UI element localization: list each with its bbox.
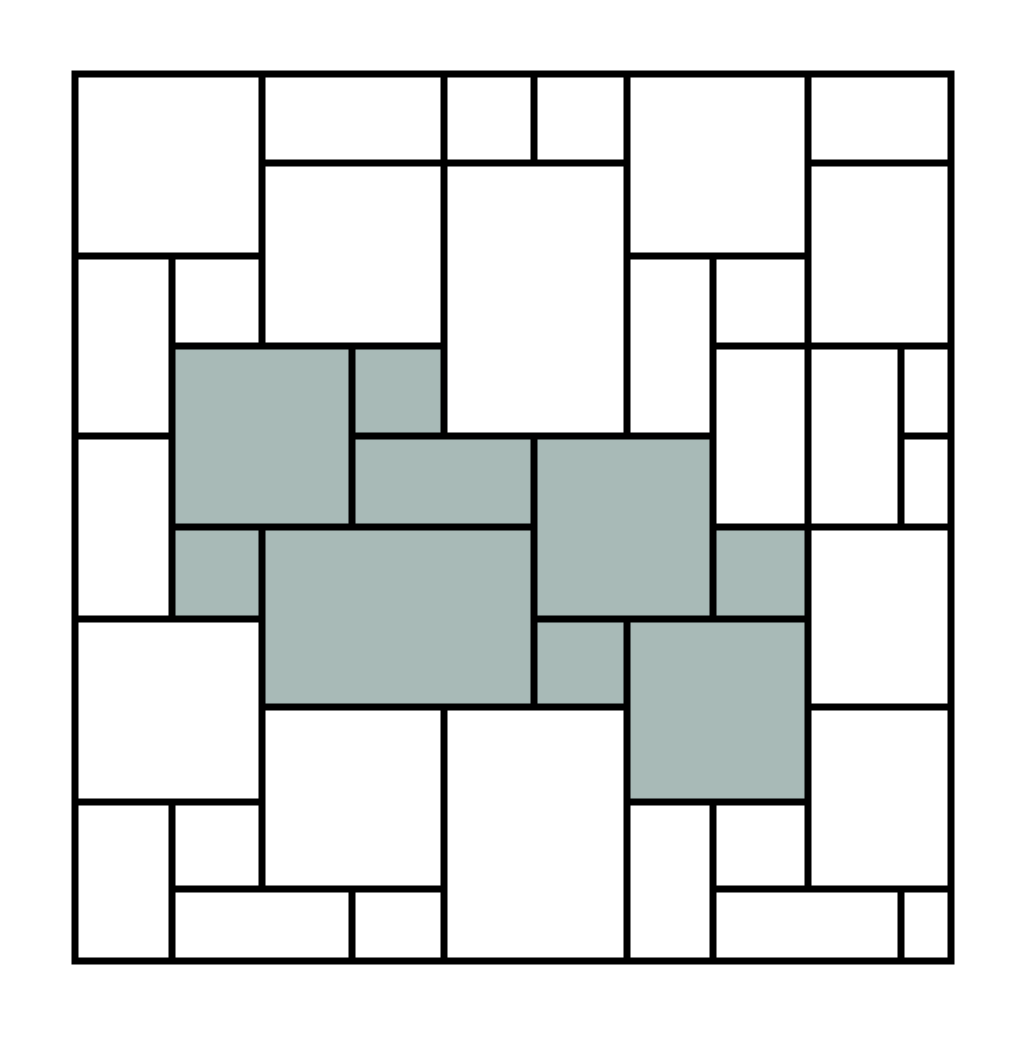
shaded-tile (172, 346, 352, 527)
white-tile (713, 256, 808, 346)
white-tile (808, 163, 951, 346)
shaded-tile (262, 527, 534, 707)
white-tile (75, 802, 172, 961)
white-tile (75, 436, 172, 619)
shaded-tile (172, 527, 262, 619)
white-tile (713, 889, 901, 961)
white-tile (713, 802, 808, 889)
white-tile (262, 707, 444, 889)
shaded-tile (534, 619, 627, 707)
white-tile (262, 163, 444, 346)
shaded-tile (352, 346, 444, 436)
white-tile (808, 74, 951, 163)
white-tile (808, 346, 901, 527)
shaded-tile (627, 619, 808, 802)
white-tile (444, 74, 534, 163)
white-tile (713, 346, 808, 527)
white-tile (75, 256, 172, 436)
diagram-page (0, 0, 1024, 1038)
white-tile (627, 74, 808, 256)
white-tile (75, 619, 262, 802)
white-tile (901, 436, 951, 527)
shaded-tile (713, 527, 808, 619)
white-tile (172, 802, 262, 889)
shaded-tile (534, 436, 713, 619)
white-tile (808, 527, 951, 707)
square-tiling-diagram (0, 0, 1024, 1038)
white-tile (808, 707, 951, 889)
white-tile (444, 163, 627, 436)
white-tile (901, 889, 951, 961)
white-tile (172, 256, 262, 346)
white-tile (262, 74, 444, 163)
white-tile (901, 346, 951, 436)
white-tile (627, 802, 713, 961)
white-tile (172, 889, 352, 961)
shaded-tile (352, 436, 534, 527)
white-tile (627, 256, 713, 436)
white-tile (444, 707, 627, 961)
white-tile (75, 74, 262, 256)
white-tile (534, 74, 627, 163)
white-tile (352, 889, 444, 961)
tiles-layer (75, 74, 951, 961)
